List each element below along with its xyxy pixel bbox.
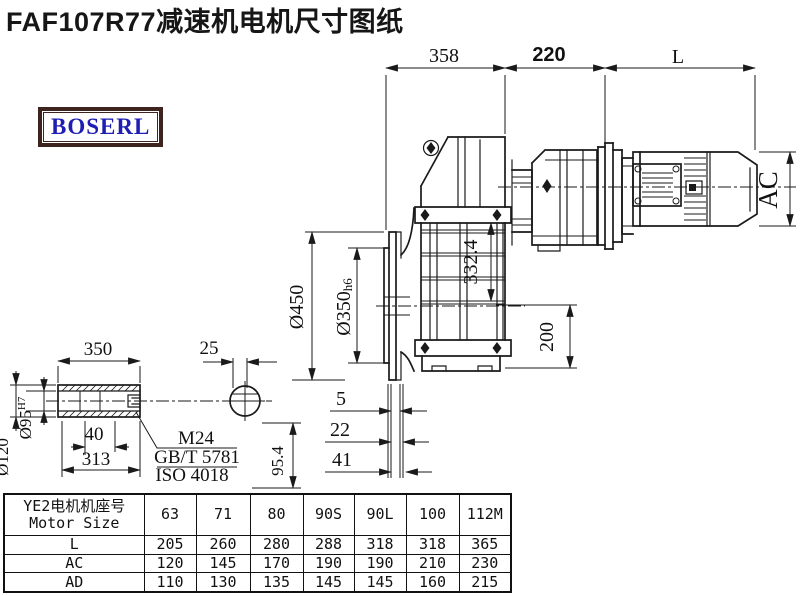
dim-350-label: 350: [84, 339, 113, 360]
table-row-L: L 205 260 280 288 318 318 365: [4, 535, 511, 554]
col-80: 80: [250, 494, 303, 535]
dim-358-label: 358: [429, 45, 459, 67]
dim-5-label: 5: [336, 388, 346, 410]
dim-220-label: 220: [532, 44, 565, 66]
dim-L-label: L: [672, 46, 684, 68]
dim-AC-label: AC: [753, 171, 783, 209]
dim-40-label: 40: [85, 424, 104, 445]
main-view-dimensions: [292, 152, 796, 472]
dim-bore-label: Ø95H7: [16, 396, 35, 439]
col-90L: 90L: [354, 494, 406, 535]
col-112M: 112M: [459, 494, 511, 535]
motor-adapter: [512, 143, 633, 251]
table-row-AD: AD 110 130 135 145 145 160 215: [4, 573, 511, 592]
thread-spec-label: M24: [178, 428, 214, 449]
table-header-row: YE2电机机座号 Motor Size 63 71 80 90S 90L 100…: [4, 494, 511, 535]
table-row-AC: AC 120 145 170 190 190 210 230: [4, 554, 511, 573]
dim-954-label: 95.4: [268, 446, 287, 476]
dim-313-label: 313: [82, 449, 111, 470]
standard-iso-label: ISO 4018: [155, 465, 228, 486]
dim-41-label: 41: [332, 449, 352, 471]
dim-shaft-od-label: Ø120: [0, 438, 12, 476]
col-100: 100: [406, 494, 459, 535]
dim-200-label: 200: [536, 322, 558, 352]
col-90S: 90S: [303, 494, 354, 535]
dim-22-label: 22: [330, 419, 350, 441]
dim-25-label: 25: [200, 338, 219, 359]
col-71: 71: [196, 494, 250, 535]
drawing-page: FAF107R77减速机电机尺寸图纸 BOSERL: [0, 0, 800, 596]
motor: [498, 152, 796, 226]
dim-flange-od-label: Ø450: [286, 285, 308, 329]
col-63: 63: [144, 494, 196, 535]
dim-3324-label: 332.4: [460, 240, 482, 285]
table-header-motor-size: YE2电机机座号 Motor Size: [4, 494, 144, 535]
dim-spigot-label: Ø350h6: [333, 278, 355, 336]
motor-size-table: YE2电机机座号 Motor Size 63 71 80 90S 90L 100…: [3, 493, 512, 593]
